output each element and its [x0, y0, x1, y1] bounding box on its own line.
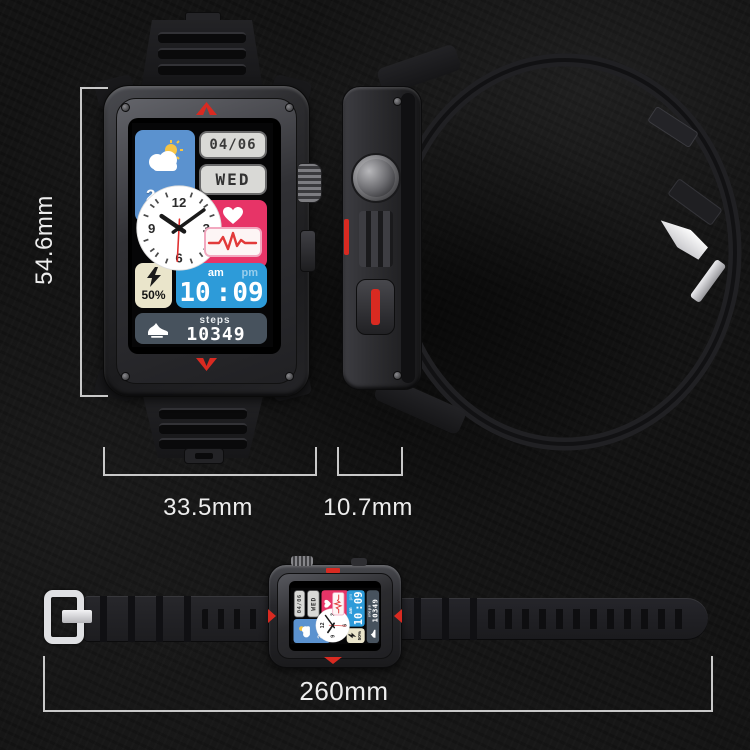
flat-side-button — [351, 558, 367, 566]
strap-ridge — [158, 32, 246, 43]
strap-body — [141, 20, 263, 90]
steps-tile: steps 10349 — [135, 313, 267, 344]
clock-numeral-6: 6 — [175, 250, 182, 265]
flat-red-top — [326, 568, 340, 573]
flat-red-right — [394, 609, 402, 623]
band-length-dimension-label: 260mm — [284, 676, 404, 707]
crown-button — [297, 163, 322, 203]
side-crown — [351, 153, 401, 203]
flat-watch-screen: 24°C 04/06 WED 104 — [290, 588, 380, 644]
steps-tile: steps 10349 — [366, 590, 378, 643]
side-button — [356, 279, 395, 335]
flat-case: 24°C 04/06 WED 104 — [268, 564, 402, 668]
bezel-screw — [121, 103, 130, 112]
clock-numeral-9: 9 — [330, 635, 336, 638]
strap-notch — [100, 596, 107, 642]
width-bracket — [103, 447, 317, 476]
strap-ridge — [159, 423, 247, 434]
heart-icon — [223, 207, 243, 225]
steps-value: 10349 — [165, 324, 267, 344]
date-tile: 04/06 — [199, 131, 267, 159]
heart-icon — [324, 600, 331, 608]
strap-notch — [156, 596, 163, 642]
flat-crown — [291, 556, 313, 566]
strap-notch — [470, 598, 477, 640]
sun-cloud-icon — [296, 622, 310, 640]
ecg-waveform-icon — [333, 593, 343, 615]
digital-time: 10:09 — [176, 279, 267, 307]
strap-ridge — [158, 64, 246, 75]
side-view — [330, 30, 750, 470]
strap-notch — [184, 596, 191, 642]
clock-numeral-6: 6 — [342, 624, 348, 627]
product-dimension-diagram: 24°C 04/06 WED 104 — [0, 0, 750, 750]
clock-numeral-12: 12 — [172, 195, 187, 210]
date-tile: 04/06 — [293, 590, 304, 617]
height-dimension-label: 54.6mm — [30, 180, 60, 300]
clock-numeral-9: 9 — [148, 221, 155, 236]
height-bracket — [80, 87, 108, 397]
strap-notch — [442, 598, 449, 640]
ecg-tile — [204, 227, 262, 257]
thickness-bracket — [337, 447, 403, 476]
side-glass-edge — [401, 93, 415, 383]
strap-notch — [414, 598, 421, 640]
flat-right-strap — [400, 598, 708, 640]
digital-time: 10:09 — [353, 590, 364, 626]
date-label: 04/06 — [209, 137, 256, 153]
strap-notch — [128, 596, 135, 642]
width-dimension-label: 33.5mm — [148, 494, 268, 522]
side-push-button — [300, 230, 316, 272]
time-hours: 10 — [179, 278, 210, 308]
flat-left-strap — [84, 596, 272, 642]
time-hours: 10 — [352, 613, 364, 626]
side-screw — [393, 97, 402, 106]
thickness-dimension-label: 10.7mm — [308, 494, 428, 522]
ecg-waveform-icon — [206, 229, 260, 255]
bezel-screw — [285, 372, 294, 381]
strap-ridge — [159, 408, 247, 419]
watch-screen: 24°C 04/06 WED 104 — [132, 123, 273, 347]
side-button-red-bar — [371, 289, 380, 325]
watch-case: 24°C 04/06 WED 104 — [103, 85, 310, 397]
strap-holes — [202, 609, 266, 629]
side-screw — [393, 371, 402, 380]
time-minutes: 09 — [232, 278, 263, 308]
steps-value: 10349 — [371, 590, 379, 631]
battery-value: 50% — [356, 628, 362, 643]
flat-screen: 24°C 04/06 WED 104 — [289, 581, 381, 651]
side-red-stripe — [344, 219, 349, 255]
battery-value: 50% — [135, 288, 172, 302]
time-separator: : — [352, 604, 364, 610]
flat-buckle-pin — [62, 610, 92, 623]
date-label: 04/06 — [296, 594, 302, 613]
time-minutes: 09 — [352, 592, 364, 605]
side-grooves — [359, 211, 393, 267]
clock-numeral-12: 12 — [320, 622, 326, 628]
bezel-screw — [121, 372, 130, 381]
front-top-strap — [141, 12, 263, 90]
clock-hub — [176, 225, 182, 231]
strap-ridge — [158, 48, 246, 59]
side-case — [342, 86, 422, 390]
time-separator: : — [216, 278, 232, 308]
bezel-screw — [285, 103, 294, 112]
sun-cloud-icon — [143, 138, 187, 174]
strap-holes — [488, 609, 692, 629]
flat-red-left — [268, 609, 276, 623]
ecg-tile — [332, 592, 344, 615]
